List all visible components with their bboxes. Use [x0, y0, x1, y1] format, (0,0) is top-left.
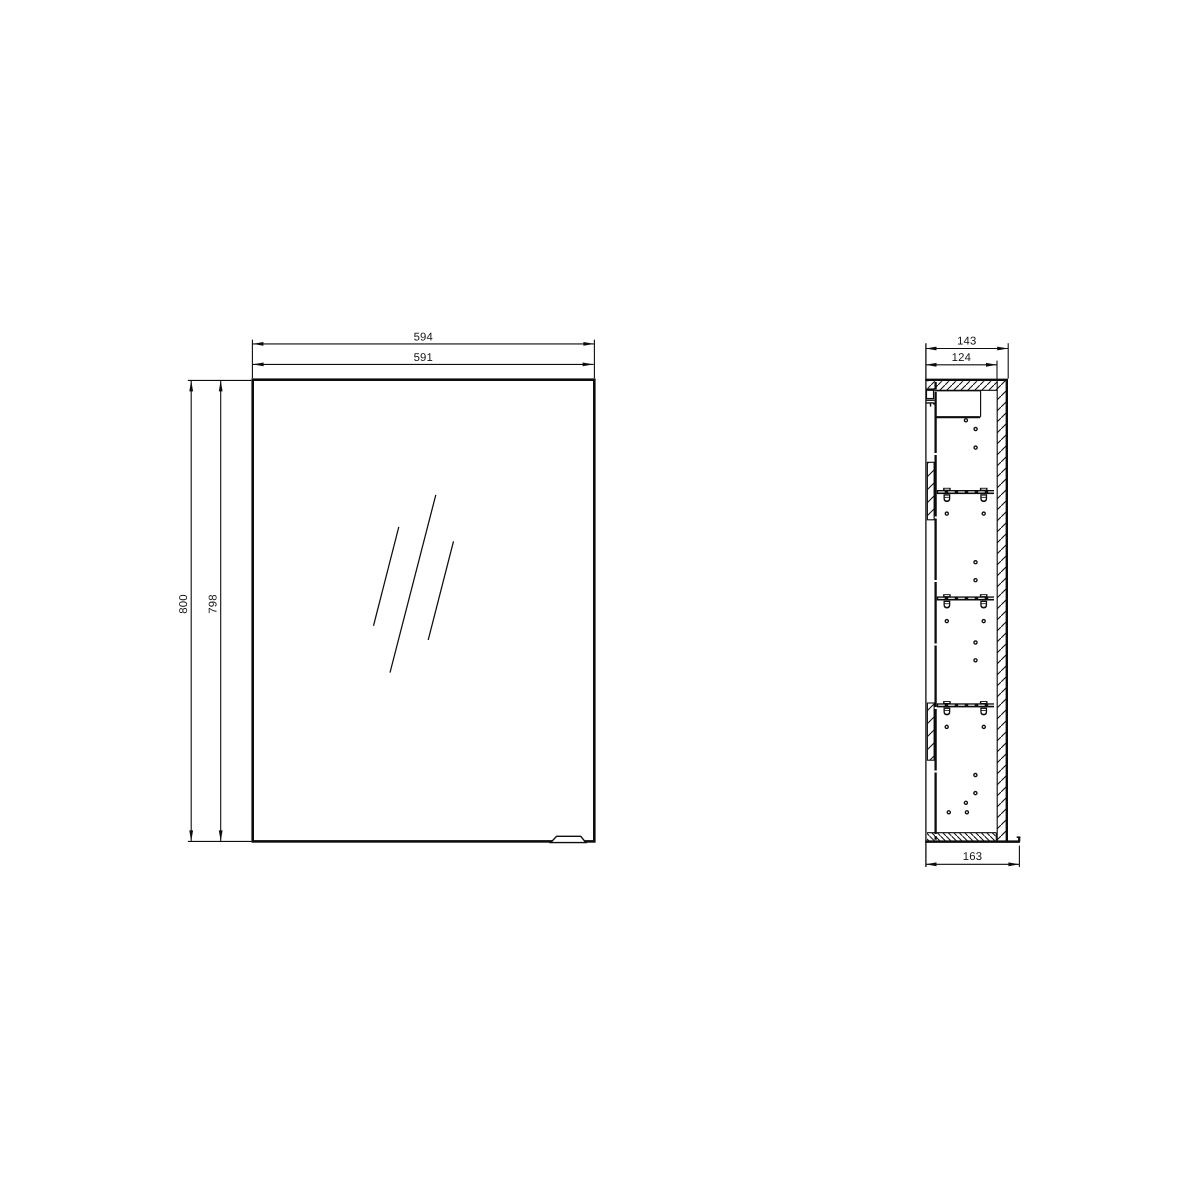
svg-text:163: 163 [963, 851, 982, 863]
svg-text:124: 124 [952, 352, 971, 364]
svg-text:143: 143 [957, 336, 976, 348]
svg-text:594: 594 [414, 331, 433, 343]
svg-text:591: 591 [414, 352, 433, 364]
svg-text:800: 800 [178, 594, 190, 613]
svg-text:798: 798 [208, 594, 220, 613]
